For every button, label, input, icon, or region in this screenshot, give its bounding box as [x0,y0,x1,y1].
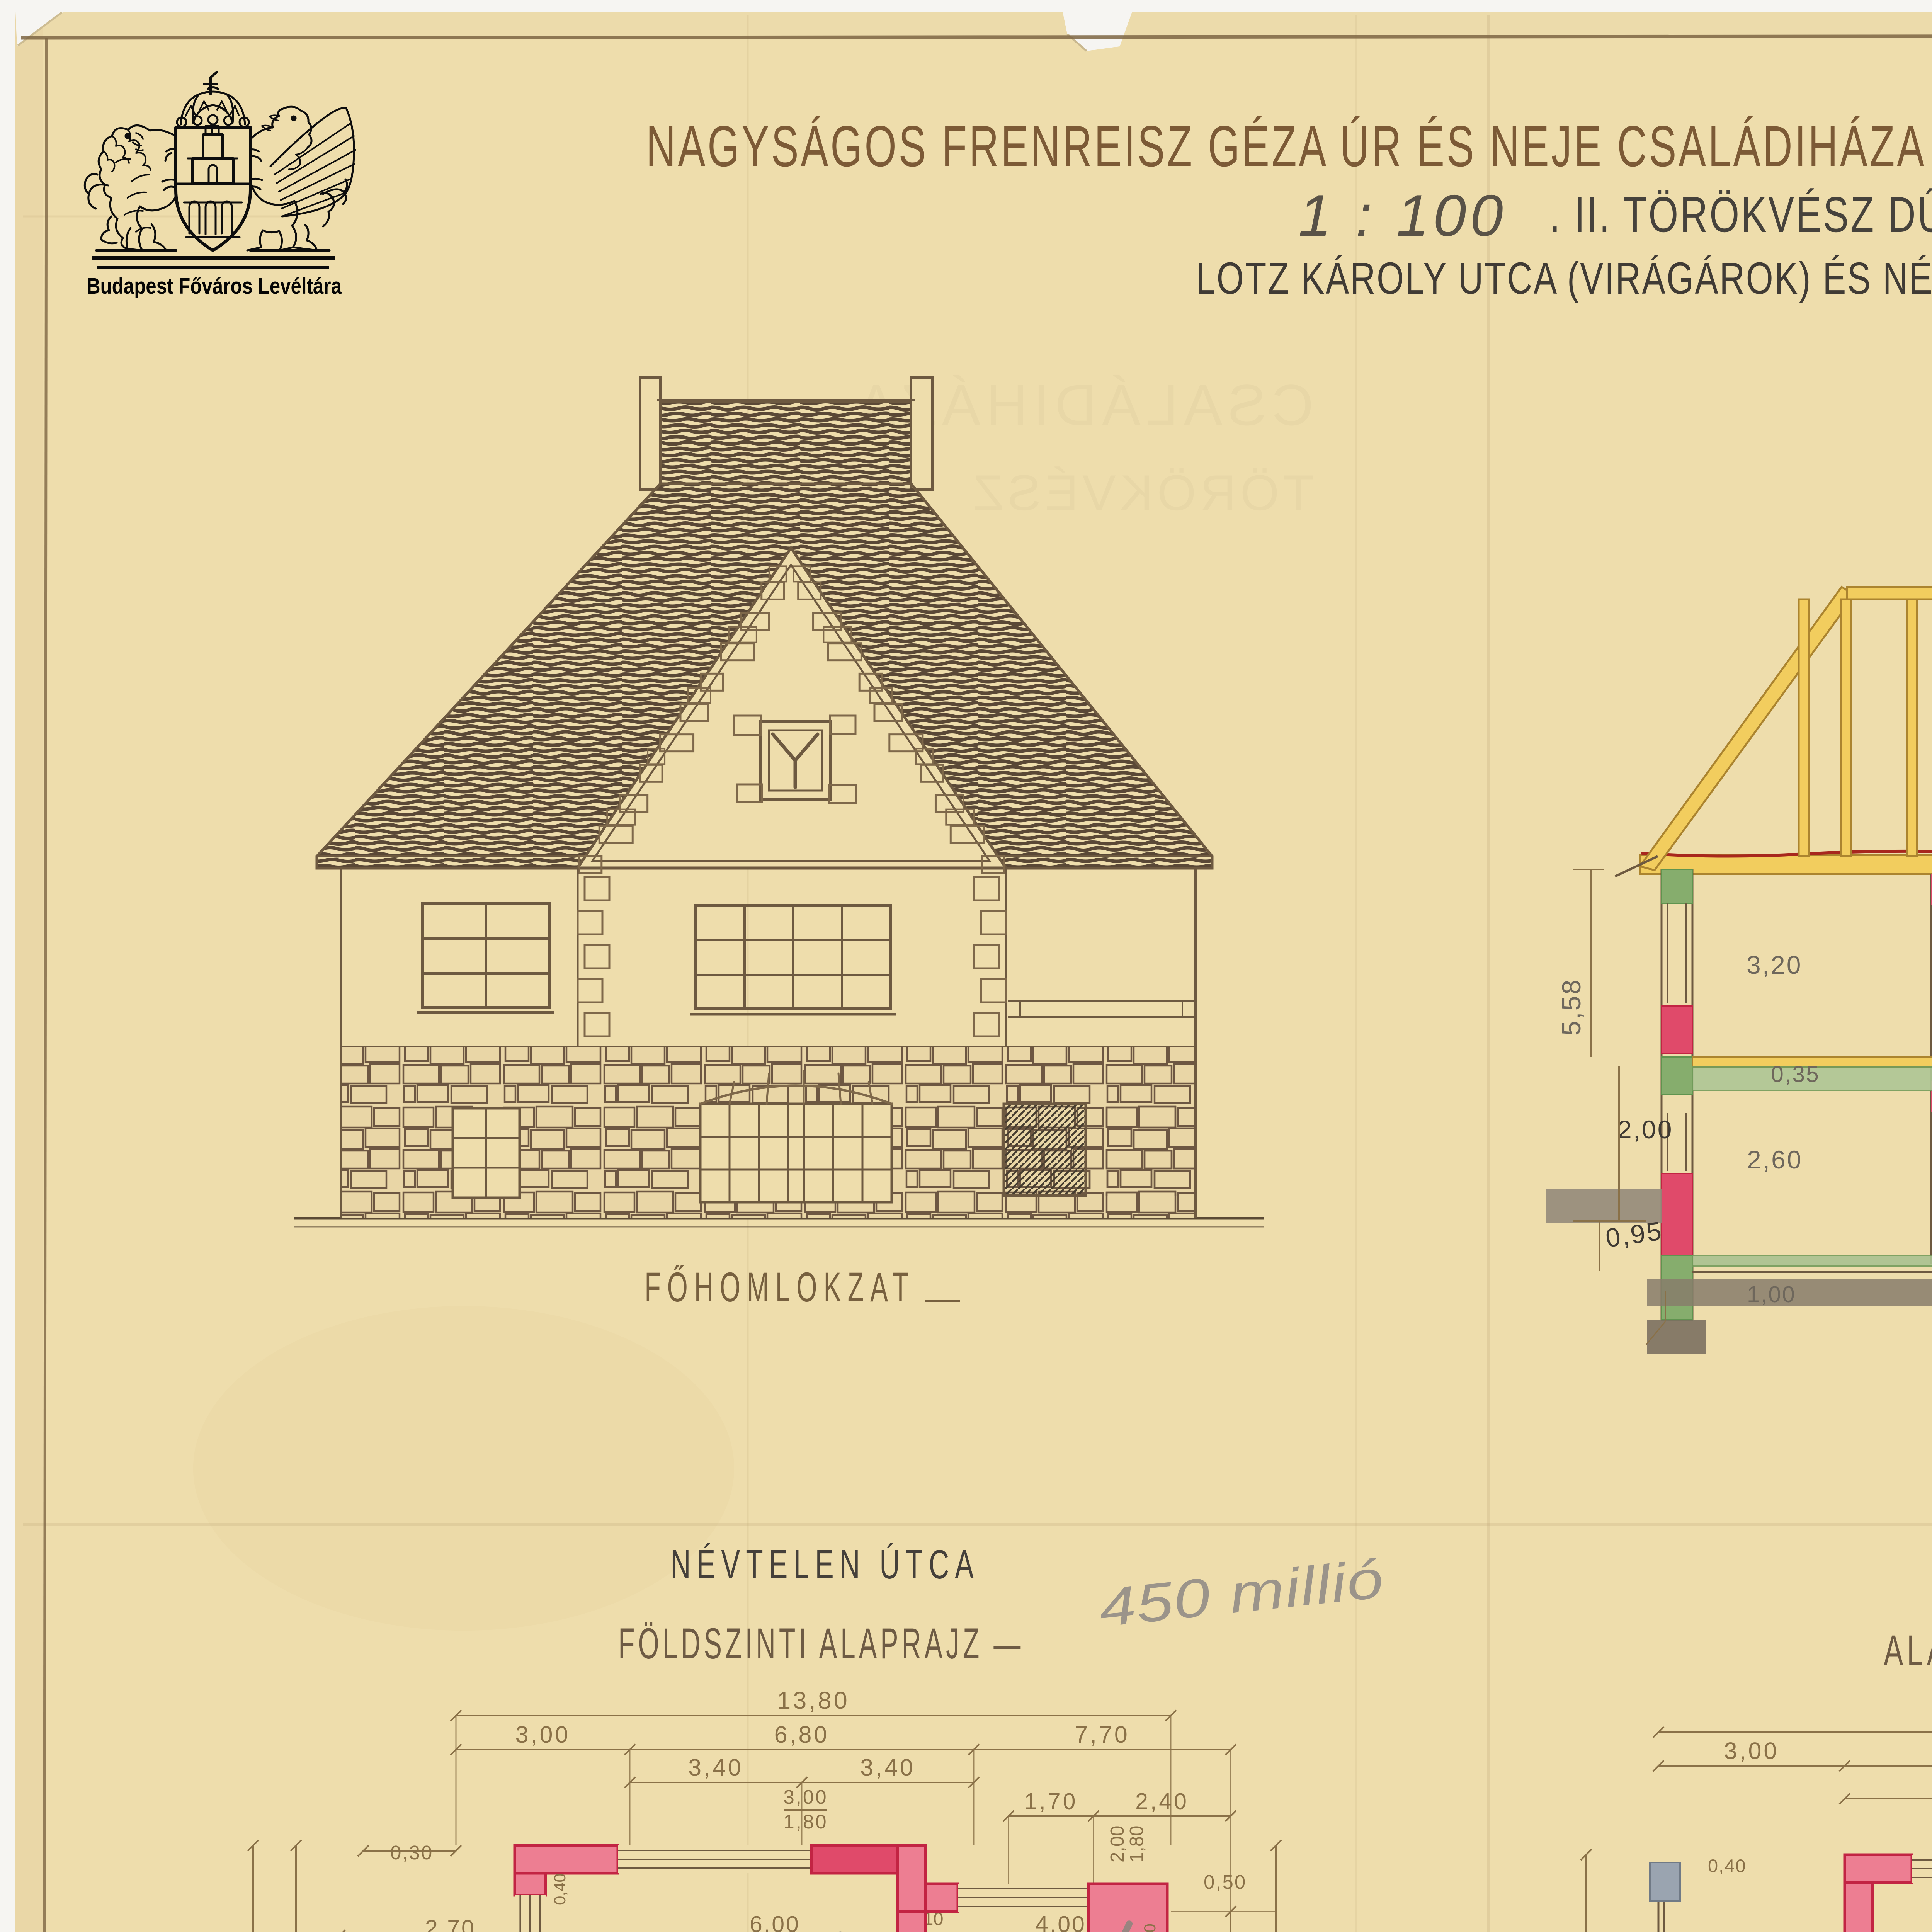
svg-text:0,40: 0,40 [1141,1923,1159,1932]
svg-text:1 : 100: 1 : 100 [1298,183,1507,248]
svg-text:3,40: 3,40 [860,1754,915,1781]
svg-text:—: — [925,1279,960,1318]
svg-text:3,40: 3,40 [688,1754,743,1781]
svg-text:1,00: 1,00 [1747,1282,1796,1307]
svg-text:. II. TÖRÖKVÉSZ DŰLŐ: . II. TÖRÖKVÉSZ DŰLŐ [1549,186,1932,243]
svg-text:3,00: 3,00 [515,1721,571,1748]
svg-text:7,70: 7,70 [1075,1721,1130,1748]
svg-text:TÖRÖKVÉSZ: TÖRÖKVÉSZ [969,464,1314,521]
svg-text:3,00: 3,00 [783,1786,828,1808]
svg-text:0,35: 0,35 [1771,1061,1820,1087]
svg-text:ALAGSOR ALAPRAJZA —: ALAGSOR ALAPRAJZA — [1884,1626,1932,1675]
svg-text:1,80: 1,80 [783,1811,828,1833]
svg-text:NÉVTELEN ÚTCA: NÉVTELEN ÚTCA [670,1542,980,1587]
svg-text:1,80: 1,80 [1126,1826,1147,1862]
svg-text:Budapest Főváros Levéltára: Budapest Főváros Levéltára [87,274,342,299]
svg-text:6,00: 6,00 [750,1912,800,1932]
svg-text:FÖLDSZINTI ALAPRAJZ —: FÖLDSZINTI ALAPRAJZ — [618,1619,1024,1668]
svg-text:FŐHOMLOKZAT: FŐHOMLOKZAT [645,1264,915,1310]
svg-text:1,70: 1,70 [1024,1789,1078,1814]
svg-text:3,00: 3,00 [1724,1738,1779,1764]
svg-text:2,40: 2,40 [1135,1789,1189,1814]
svg-text:2,60: 2,60 [1747,1145,1803,1174]
svg-text:2,70: 2,70 [425,1915,476,1932]
svg-text:3,20: 3,20 [1747,951,1802,979]
svg-text:NAGYSÁGOS FRENREISZ GÉZA Ú: NAGYSÁGOS FRENREISZ GÉZA ÚR ÉS NEJE CSAL… [646,114,1932,179]
svg-text:0,40: 0,40 [1708,1855,1746,1876]
svg-text:5,58: 5,58 [1557,978,1586,1036]
svg-text:0,30: 0,30 [390,1842,433,1864]
svg-text:6,80: 6,80 [774,1721,830,1748]
svg-text:0,50: 0,50 [1204,1871,1247,1893]
svg-text:0,40: 0,40 [551,1873,569,1905]
svg-text:4,00: 4,00 [1036,1912,1086,1932]
svg-text:2,00: 2,00 [1617,1115,1673,1144]
svg-text:2,00: 2,00 [1107,1826,1128,1862]
svg-text:LOTZ KÁROLY UTCA (VIRÁGÁROK) É: LOTZ KÁROLY UTCA (VIRÁGÁROK) ÉS NÉVTELEN… [1196,253,1932,303]
svg-text:13,80: 13,80 [777,1687,850,1714]
